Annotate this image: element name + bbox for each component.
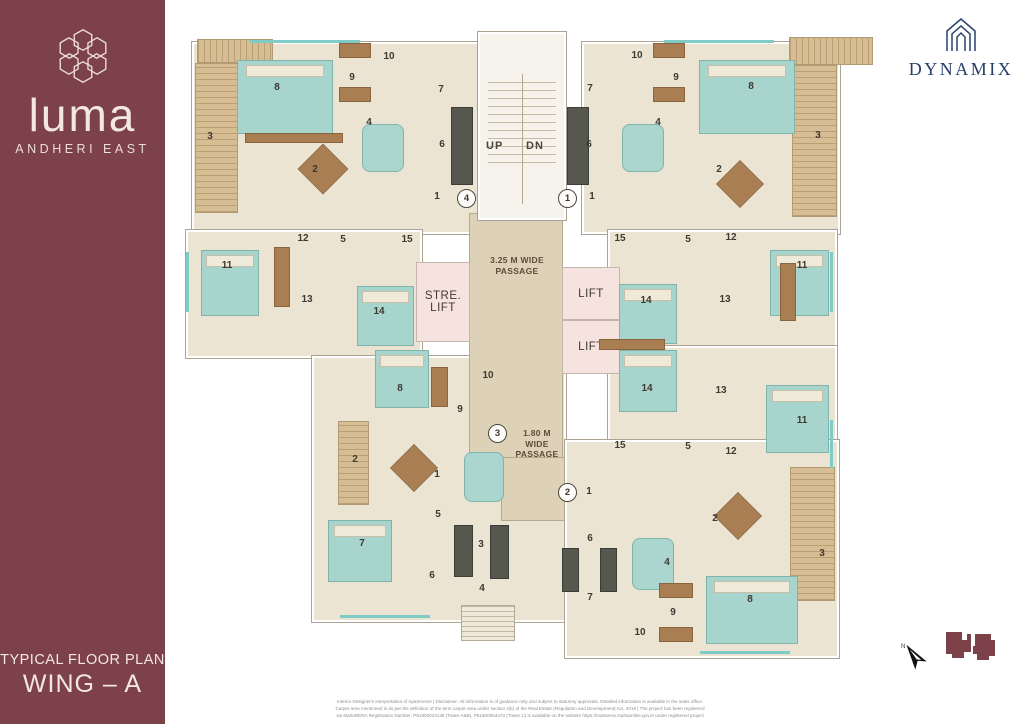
room-number: 3 [471, 539, 491, 550]
wardrobe [432, 368, 447, 406]
room-number: 6 [580, 533, 600, 544]
disclaimer-line: via MahaRERA Registration Number: P51800… [180, 713, 860, 720]
room-number: 14 [636, 295, 656, 306]
unit-marker: 2 [558, 483, 577, 502]
room-number: 6 [422, 570, 442, 581]
room-number: 13 [711, 385, 731, 396]
wardrobe [660, 584, 692, 597]
plan-title: TYPICAL FLOOR PLAN [0, 652, 165, 668]
key-plan-icon [942, 628, 998, 686]
console [246, 134, 342, 142]
room-number: 7 [580, 83, 600, 94]
passage-secondary-label: 1.80 M WIDE PASSAGE [514, 428, 560, 460]
room-number: 5 [428, 509, 448, 520]
wardrobe [654, 88, 684, 101]
disclaimer-line: Interior Designer's interpretation of Ap… [180, 699, 860, 706]
window [664, 40, 774, 43]
room-number: 5 [333, 234, 353, 245]
room-number: 4 [648, 117, 668, 128]
kitchen-counter [455, 526, 472, 576]
stretcher-lift: STRE. LIFT [416, 262, 470, 342]
central-passage [470, 214, 562, 460]
developer-logo: DYNAMIX [905, 16, 1017, 80]
room-number: 6 [432, 139, 452, 150]
deck-hatch [462, 606, 514, 640]
window [186, 252, 189, 312]
kitchen-counter [452, 108, 472, 184]
balcony-top-right [793, 66, 836, 216]
room-number: 10 [630, 627, 650, 638]
stair-dn-label: DN [526, 140, 544, 152]
bed [619, 350, 677, 412]
room-number: 14 [637, 383, 657, 394]
room-number: 1 [582, 191, 602, 202]
balcony-top-left-horizontal [198, 40, 272, 62]
room-number: 11 [792, 260, 812, 271]
kitchen-counter [491, 526, 508, 578]
room-number: 9 [342, 72, 362, 83]
unit-marker: 1 [558, 189, 577, 208]
room-number: 2 [345, 454, 365, 465]
bed [237, 60, 333, 134]
room-number: 4 [657, 557, 677, 568]
room-number: 9 [450, 404, 470, 415]
kitchen-counter [563, 549, 578, 591]
room-number: 13 [297, 294, 317, 305]
room-number: 9 [663, 607, 683, 618]
room-number: 12 [293, 233, 313, 244]
passage-main-label: 3.25 M WIDE PASSAGE [488, 255, 546, 276]
room-number: 2 [305, 164, 325, 175]
room-number: 7 [431, 84, 451, 95]
dynamix-arch-icon [939, 16, 983, 52]
room-number: 15 [610, 440, 630, 451]
room-number: 5 [678, 234, 698, 245]
room-number: 14 [369, 306, 389, 317]
window [250, 40, 360, 43]
wardrobe [781, 264, 795, 320]
room-number: 4 [472, 583, 492, 594]
room-number: 8 [741, 81, 761, 92]
brand-name: luma [0, 92, 165, 138]
plan-wing: WING – A [0, 670, 165, 699]
bed [706, 576, 798, 644]
disclaimer-text: Interior Designer's interpretation of Ap… [180, 699, 860, 720]
room-number: 1 [427, 469, 447, 480]
lift-1: LIFT [562, 267, 620, 320]
room-number: 15 [397, 234, 417, 245]
room-number: 12 [721, 232, 741, 243]
room-number: 13 [715, 294, 735, 305]
window [340, 615, 430, 618]
room-number: 10 [379, 51, 399, 62]
room-number: 3 [200, 131, 220, 142]
dining-table [362, 124, 404, 172]
bed [619, 284, 677, 344]
room-number: 6 [579, 139, 599, 150]
room-number: 4 [359, 117, 379, 128]
room-number: 10 [627, 50, 647, 61]
wardrobe [660, 628, 692, 641]
brand-sidebar: luma ANDHERI EAST TYPICAL FLOOR PLAN WIN… [0, 0, 165, 724]
stair-up-label: UP [486, 140, 503, 152]
sideboard [600, 340, 664, 349]
dining-table [622, 124, 664, 172]
wardrobe [340, 88, 370, 101]
dining-table [464, 452, 504, 502]
unit-marker: 3 [488, 424, 507, 443]
room-number: 7 [352, 538, 372, 549]
north-arrow-icon: N [898, 640, 932, 674]
room-number: 11 [792, 415, 812, 426]
wardrobe [654, 44, 684, 57]
room-number: 3 [808, 130, 828, 141]
brand-location: ANDHERI EAST [0, 142, 165, 156]
disclaimer-line: Carpet area mentioned is as per the defi… [180, 706, 860, 713]
svg-text:N: N [901, 644, 905, 650]
wardrobe [340, 44, 370, 57]
window [830, 420, 833, 468]
room-number: 8 [740, 594, 760, 605]
window [830, 252, 833, 312]
room-number: 2 [709, 164, 729, 175]
luma-hexagon-logo [44, 22, 122, 90]
wardrobe [275, 248, 289, 306]
room-number: 7 [580, 592, 600, 603]
room-number: 12 [721, 446, 741, 457]
room-number: 11 [217, 260, 237, 271]
room-number: 1 [427, 191, 447, 202]
stair-divider [522, 74, 523, 204]
room-number: 5 [678, 441, 698, 452]
room-number: 10 [478, 370, 498, 381]
bed [699, 60, 795, 134]
room-number: 8 [390, 383, 410, 394]
room-number: 2 [705, 513, 725, 524]
lower-passage [502, 458, 564, 520]
developer-name: DYNAMIX [905, 59, 1017, 80]
unit-marker: 4 [457, 189, 476, 208]
room-number: 3 [812, 548, 832, 559]
room-number: 1 [579, 486, 599, 497]
staircase [478, 32, 566, 220]
bed [375, 350, 429, 408]
bed [328, 520, 392, 582]
kitchen-counter [601, 549, 616, 591]
room-number: 15 [610, 233, 630, 244]
window [700, 651, 790, 654]
balcony-top-right-horizontal [790, 38, 872, 64]
room-number: 8 [267, 82, 287, 93]
room-number: 9 [666, 72, 686, 83]
